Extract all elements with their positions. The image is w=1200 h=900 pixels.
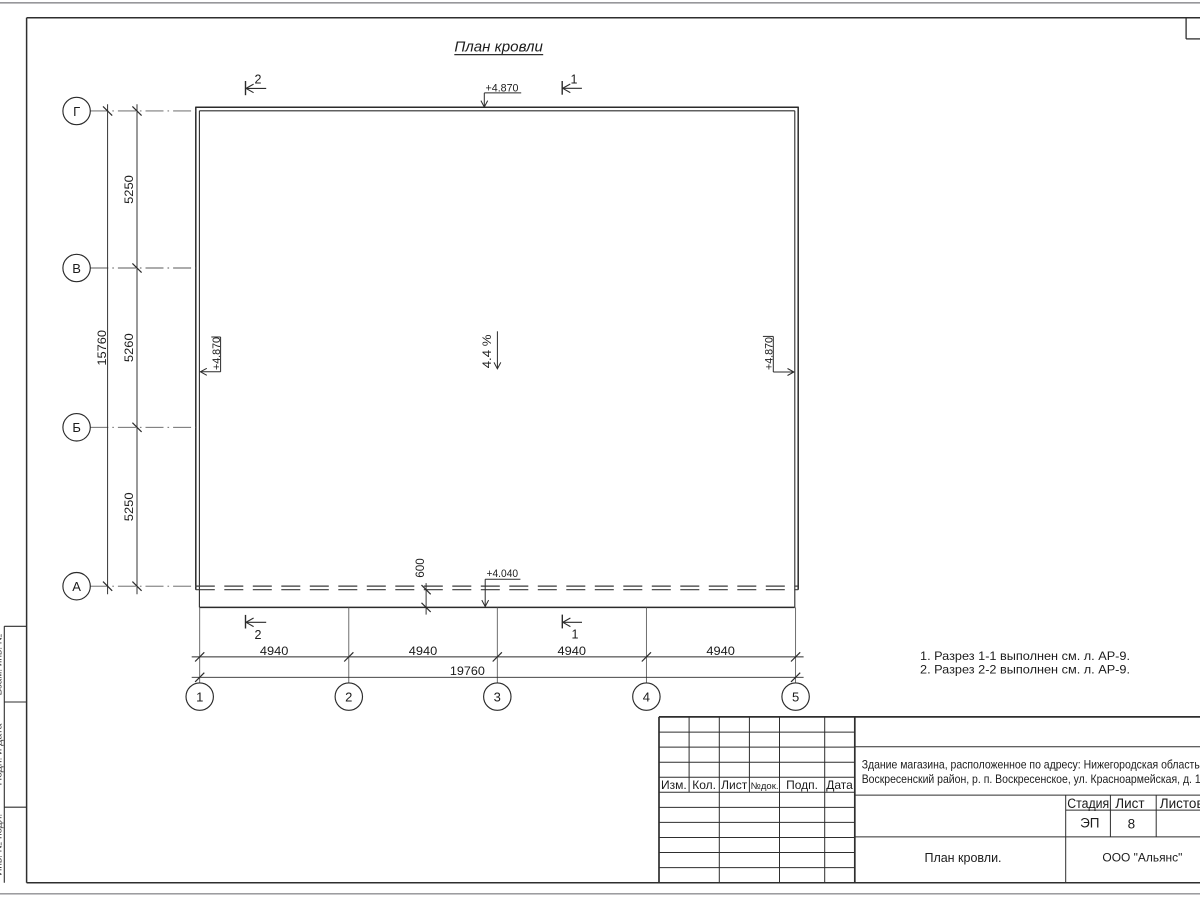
svg-text:№док.: №док. <box>751 781 779 792</box>
svg-text:4.4 %: 4.4 % <box>480 334 494 368</box>
svg-text:4940: 4940 <box>706 644 735 658</box>
svg-text:5250: 5250 <box>122 175 136 204</box>
svg-text:Б: Б <box>72 420 81 435</box>
svg-text:Лист: Лист <box>1115 796 1144 811</box>
svg-text:ЭП: ЭП <box>1080 816 1099 831</box>
svg-text:Взам. инв. №: Взам. инв. № <box>0 634 5 696</box>
svg-text:+4.040: +4.040 <box>487 568 519 580</box>
svg-text:4940: 4940 <box>558 644 587 658</box>
svg-text:5: 5 <box>792 689 799 704</box>
svg-text:3: 3 <box>494 689 501 704</box>
svg-text:2. Разрез 2-2 выполнен см. л.: 2. Разрез 2-2 выполнен см. л. АР-9. <box>920 663 1130 677</box>
svg-text:4940: 4940 <box>260 644 289 658</box>
svg-text:Здание магазина, расположенное: Здание магазина, расположенное по адресу… <box>862 757 1200 771</box>
svg-text:А: А <box>72 579 81 594</box>
svg-text:ООО "Альянс": ООО "Альянс" <box>1102 851 1182 865</box>
svg-text:План кровли.: План кровли. <box>924 851 1001 865</box>
svg-text:Подп.: Подп. <box>786 778 818 792</box>
svg-text:1: 1 <box>572 628 579 642</box>
svg-text:2: 2 <box>255 73 262 87</box>
svg-text:Изм.: Изм. <box>661 778 687 792</box>
svg-text:В: В <box>72 261 81 276</box>
svg-text:2: 2 <box>345 689 352 704</box>
svg-text:1. Разрез 1-1 выполнен см. л.: 1. Разрез 1-1 выполнен см. л. АР-9. <box>920 649 1130 663</box>
svg-text:Инв. № подл.: Инв. № подл. <box>0 814 5 876</box>
svg-text:4: 4 <box>643 689 650 704</box>
svg-text:Воскресенский район, р. п. Вос: Воскресенский район, р. п. Воскресенское… <box>862 772 1200 786</box>
svg-text:15760: 15760 <box>95 330 109 366</box>
svg-text:Стадия: Стадия <box>1067 796 1109 811</box>
svg-text:Г: Г <box>73 104 80 119</box>
svg-text:1: 1 <box>196 689 203 704</box>
svg-text:Дата: Дата <box>826 778 853 792</box>
svg-text:Лист: Лист <box>721 778 748 792</box>
svg-text:Кол.: Кол. <box>692 778 716 792</box>
svg-text:Листов: Листов <box>1160 796 1200 811</box>
svg-text:План кровли: План кровли <box>454 39 543 56</box>
svg-text:4940: 4940 <box>409 644 438 658</box>
svg-text:8: 8 <box>1128 816 1136 831</box>
svg-text:Подп. и дата: Подп. и дата <box>0 723 5 786</box>
svg-text:2: 2 <box>255 628 262 642</box>
svg-text:5260: 5260 <box>122 333 136 362</box>
svg-text:1: 1 <box>571 72 578 86</box>
svg-text:600: 600 <box>413 558 427 578</box>
svg-text:19760: 19760 <box>450 664 485 678</box>
svg-text:5250: 5250 <box>122 492 136 521</box>
